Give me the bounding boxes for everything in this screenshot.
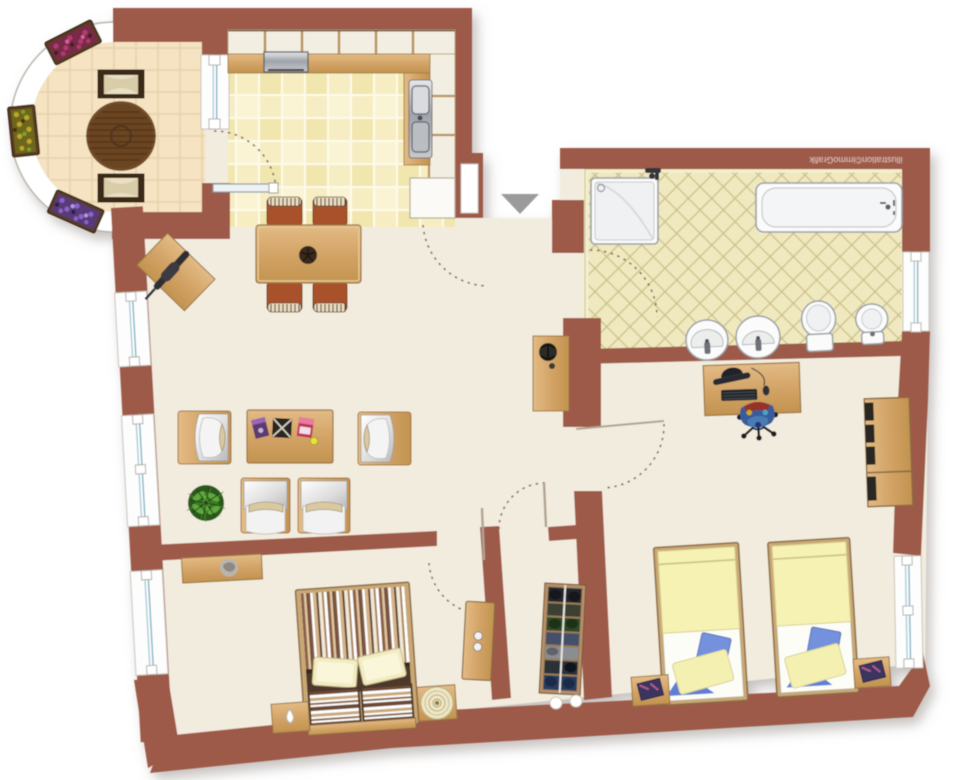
svg-text:illustration©immoGrafik: illustration©immoGrafik: [809, 155, 903, 165]
